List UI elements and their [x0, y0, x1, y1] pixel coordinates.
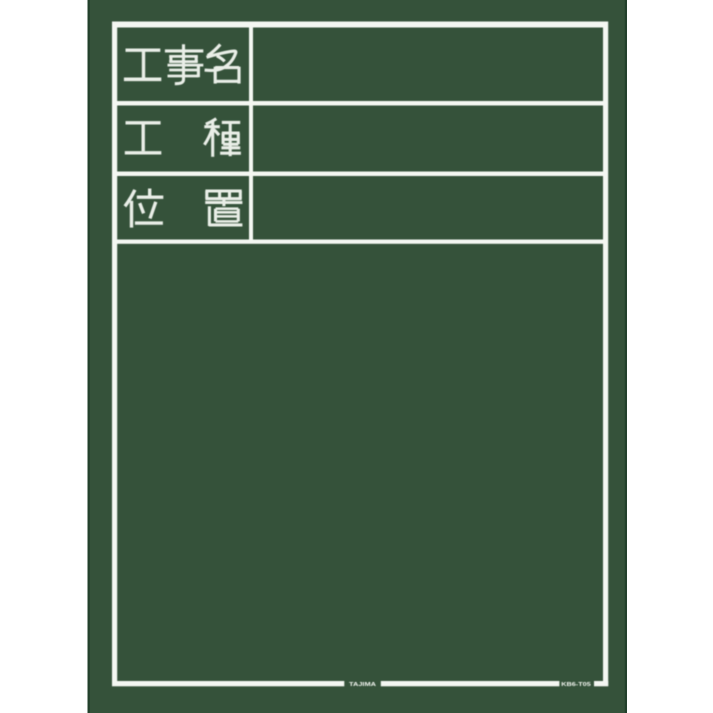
svg-text:KB6-T05: KB6-T05	[561, 682, 591, 688]
svg-text:TAJIMA: TAJIMA	[349, 682, 376, 688]
